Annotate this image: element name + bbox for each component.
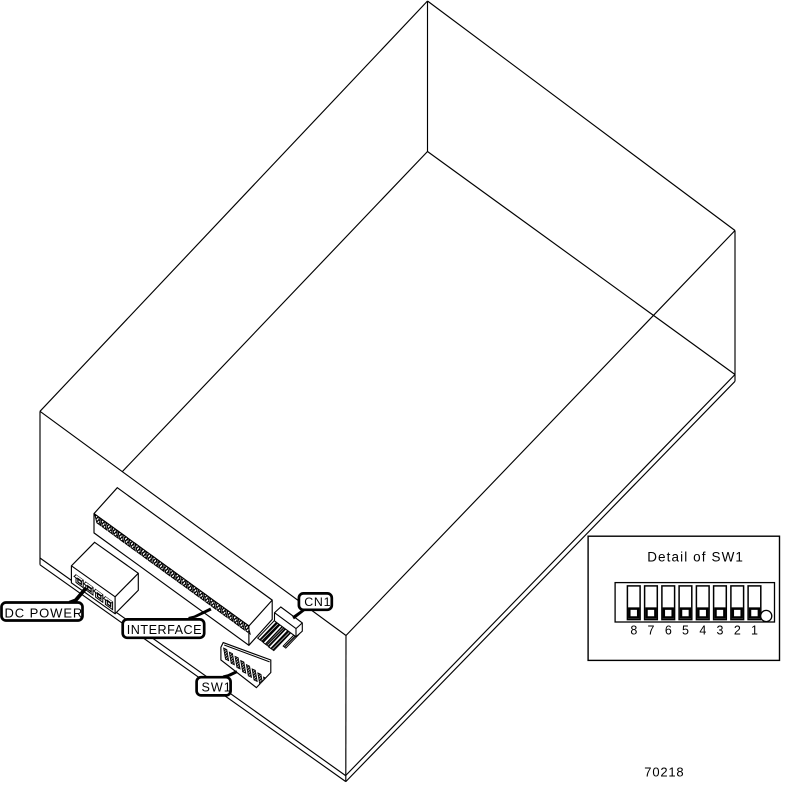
svg-text:CN1: CN1 <box>304 595 331 609</box>
svg-text:1: 1 <box>751 624 758 638</box>
svg-text:8: 8 <box>630 624 637 638</box>
svg-text:DC POWER: DC POWER <box>5 605 84 620</box>
svg-text:7: 7 <box>648 624 655 638</box>
svg-text:INTERFACE: INTERFACE <box>127 623 202 637</box>
svg-text:SW1: SW1 <box>202 680 232 694</box>
svg-text:Detail of SW1: Detail of SW1 <box>647 549 744 564</box>
svg-text:4: 4 <box>699 624 706 638</box>
svg-text:2: 2 <box>734 624 741 638</box>
svg-text:3: 3 <box>717 624 724 638</box>
svg-text:6: 6 <box>665 624 672 638</box>
svg-text:70218: 70218 <box>644 764 684 779</box>
svg-text:5: 5 <box>682 624 689 638</box>
